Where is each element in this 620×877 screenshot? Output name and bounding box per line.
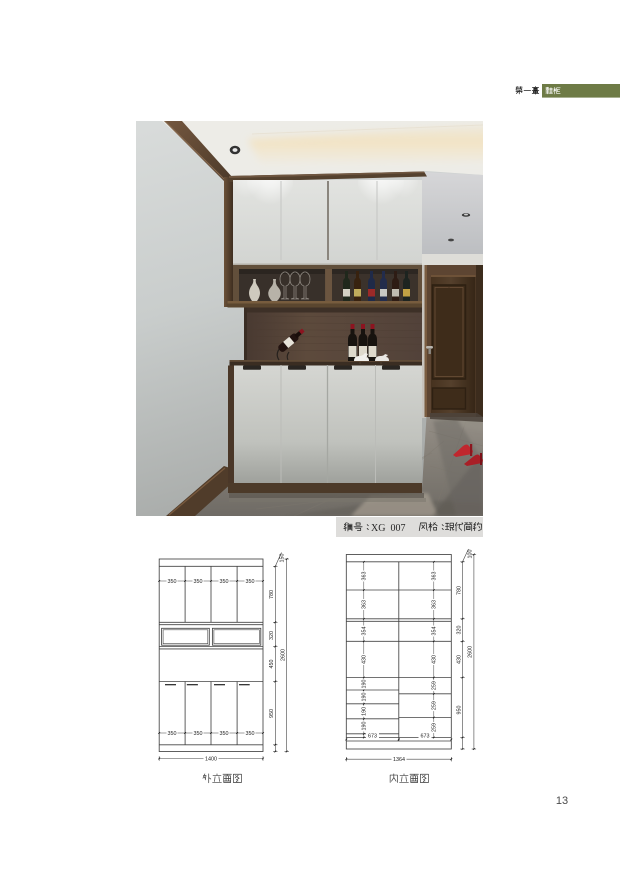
svg-text:350: 350 bbox=[168, 579, 177, 585]
svg-text:673: 673 bbox=[368, 734, 377, 740]
svg-text:363: 363 bbox=[432, 600, 438, 609]
svg-text:190: 190 bbox=[362, 693, 368, 702]
svg-text:350: 350 bbox=[220, 731, 229, 737]
svg-text:350: 350 bbox=[246, 579, 255, 585]
svg-text:350: 350 bbox=[246, 731, 255, 737]
svg-text:190: 190 bbox=[362, 680, 368, 689]
svg-text:673: 673 bbox=[421, 734, 430, 740]
svg-text:430: 430 bbox=[432, 655, 438, 664]
svg-text:259: 259 bbox=[432, 681, 438, 690]
svg-text:354: 354 bbox=[432, 627, 438, 636]
svg-text:363: 363 bbox=[432, 572, 438, 581]
svg-text:259: 259 bbox=[432, 723, 438, 732]
svg-text:1364: 1364 bbox=[393, 757, 405, 763]
svg-text:354: 354 bbox=[362, 627, 368, 636]
svg-text:100: 100 bbox=[468, 550, 474, 559]
svg-text:350: 350 bbox=[194, 731, 203, 737]
svg-text:363: 363 bbox=[362, 600, 368, 609]
svg-text:XG 007: XG 007 bbox=[371, 523, 405, 534]
svg-text:430: 430 bbox=[456, 655, 462, 664]
svg-text:259: 259 bbox=[432, 701, 438, 710]
svg-text:363: 363 bbox=[362, 572, 368, 581]
svg-text:320: 320 bbox=[269, 631, 275, 640]
svg-text:320: 320 bbox=[456, 626, 462, 635]
svg-text:430: 430 bbox=[362, 655, 368, 664]
svg-text:150: 150 bbox=[280, 554, 286, 563]
svg-text:950: 950 bbox=[269, 709, 275, 718]
svg-text:190: 190 bbox=[362, 707, 368, 716]
svg-text:350: 350 bbox=[194, 579, 203, 585]
svg-text:950: 950 bbox=[456, 706, 462, 715]
svg-text:2600: 2600 bbox=[468, 646, 474, 658]
svg-text:350: 350 bbox=[220, 579, 229, 585]
svg-text:780: 780 bbox=[269, 590, 275, 599]
svg-text:2600: 2600 bbox=[281, 649, 287, 661]
svg-text:190: 190 bbox=[362, 722, 368, 731]
svg-text:450: 450 bbox=[269, 660, 275, 669]
svg-text:350: 350 bbox=[168, 731, 177, 737]
svg-text:1400: 1400 bbox=[205, 756, 217, 762]
svg-text:780: 780 bbox=[456, 586, 462, 595]
